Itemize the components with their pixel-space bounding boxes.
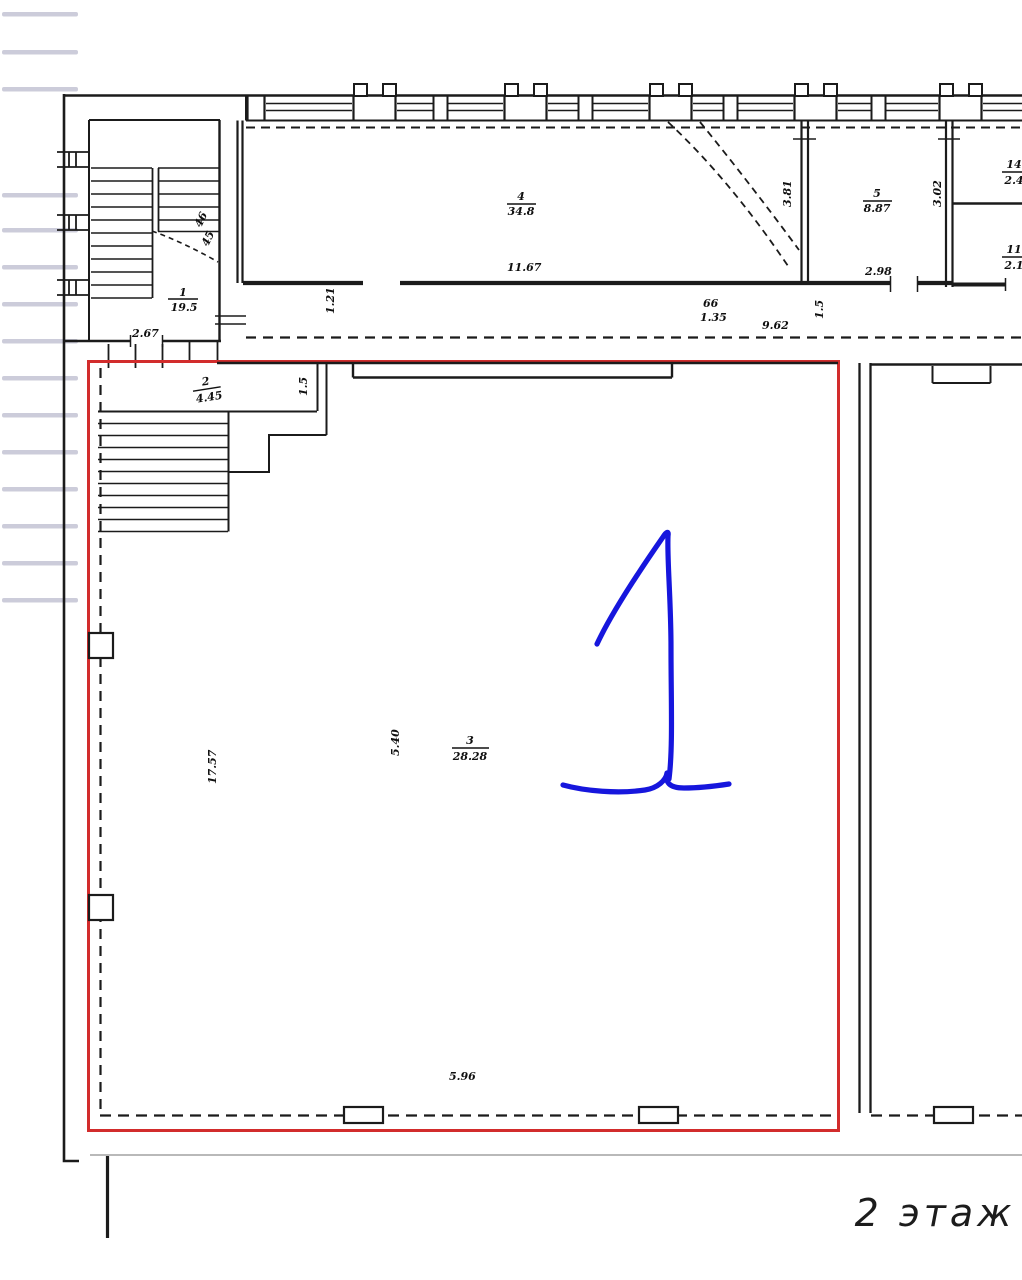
- dim-corridor-width: 1.21: [324, 287, 337, 314]
- room-labels: 1 19.5 2 4.45 3 28.28 4 34.8 5 8.87 14 2…: [168, 158, 1022, 763]
- stair-steps-left-flight: [91, 168, 153, 298]
- svg-text:34.8: 34.8: [508, 205, 535, 218]
- dim-room4-length: 11.67: [507, 261, 542, 274]
- room3-walls: [89, 363, 838, 1123]
- dim-stair-door: 2.67: [131, 327, 159, 340]
- stair-note-a: 46: [192, 210, 210, 230]
- right-section-walls: [860, 363, 1022, 1123]
- dim-door-sup: 66: [703, 297, 719, 310]
- svg-text:3: 3: [466, 734, 474, 747]
- room5-label: 5 8.87: [863, 187, 892, 215]
- stair-window-symbols: [57, 152, 90, 295]
- room2-label: 2 4.45: [191, 373, 224, 406]
- dim-door-width: 1.35: [700, 311, 727, 324]
- door-opening: [639, 1107, 678, 1123]
- right-bottom-room-label: 11 2.1: [1002, 243, 1022, 272]
- dim-room5-wall: 3.02: [931, 180, 944, 207]
- floor-caption: 2 этаж: [855, 1191, 1016, 1235]
- stairwell-2-steps: [98, 412, 229, 532]
- dimension-labels: 2.67 1.21 11.67 66 1.35 9.62 1.5 2.98 3.…: [131, 180, 944, 1083]
- band-glazing-lines: [266, 104, 1022, 111]
- handwritten-mark-1: [563, 532, 729, 792]
- page-edge-marks: [2, 12, 78, 603]
- dim-room3-inner: 5.40: [389, 729, 402, 756]
- floor-plan-drawing: 1 19.5 2 4.45 3 28.28 4 34.8 5 8.87 14 2…: [0, 0, 1022, 1280]
- door-opening: [934, 1107, 973, 1123]
- svg-text:5: 5: [873, 187, 881, 200]
- dim-room3-depth: 17.57: [206, 749, 219, 784]
- svg-text:28.28: 28.28: [452, 750, 488, 763]
- svg-text:4.45: 4.45: [195, 389, 224, 406]
- dim-corridor-length: 9.62: [762, 319, 789, 332]
- band-piers: [248, 96, 982, 121]
- svg-text:4: 4: [517, 190, 525, 203]
- dim-room5-left: 3.81: [781, 180, 794, 207]
- svg-text:2: 2: [200, 375, 211, 389]
- door-swing-arc: [668, 122, 788, 266]
- svg-text:2.1: 2.1: [1003, 259, 1022, 272]
- room3-label: 3 28.28: [452, 734, 489, 763]
- dim-room3-length: 5.96: [449, 1070, 476, 1083]
- door-opening: [344, 1107, 383, 1123]
- svg-text:8.87: 8.87: [864, 202, 891, 215]
- right-top-room-label: 14 2.4: [1002, 158, 1022, 187]
- svg-text:1: 1: [179, 286, 187, 299]
- dim-passage-width: 1.5: [297, 377, 310, 396]
- svg-text:14: 14: [1006, 158, 1021, 171]
- room1-label: 1 19.5: [168, 286, 198, 314]
- dim-room5-door: 2.98: [864, 265, 892, 278]
- wall-pilaster: [89, 633, 113, 658]
- svg-text:2.4: 2.4: [1003, 174, 1022, 187]
- scanned-floor-plan-page: 1 19.5 2 4.45 3 28.28 4 34.8 5 8.87 14 2…: [0, 0, 1022, 1280]
- facade-window-band: [246, 84, 1022, 121]
- svg-text:11: 11: [1006, 243, 1021, 256]
- highlight-rectangle: [89, 362, 839, 1131]
- dim-corridor-width-2: 1.5: [813, 300, 826, 319]
- room4-label: 4 34.8: [507, 190, 536, 218]
- wall-pilaster: [89, 895, 113, 920]
- svg-text:19.5: 19.5: [171, 301, 198, 314]
